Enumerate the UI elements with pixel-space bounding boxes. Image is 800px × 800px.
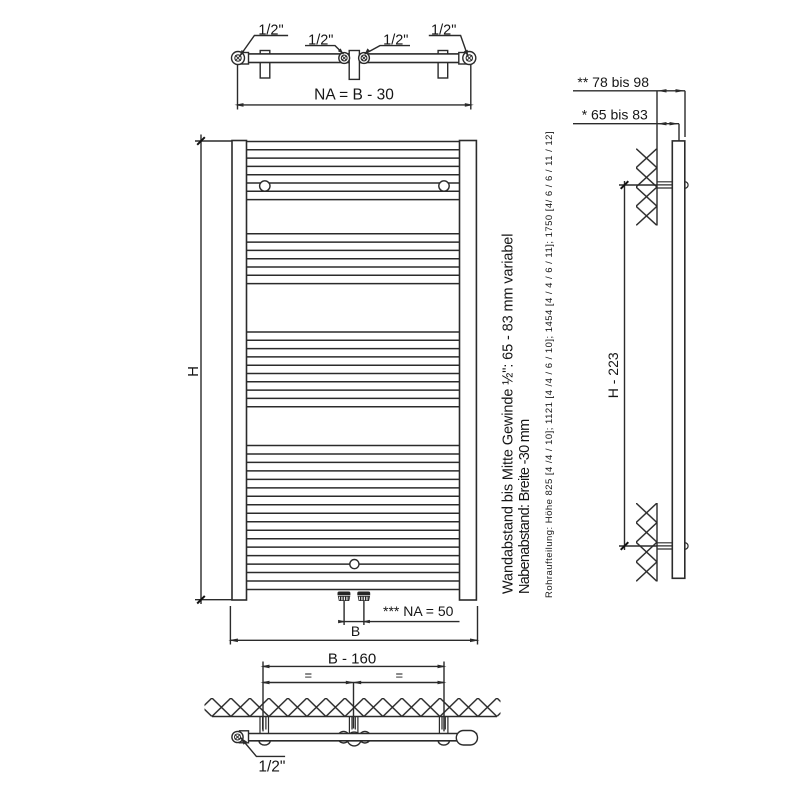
svg-text:=: = [396, 668, 404, 683]
svg-text:1/2": 1/2" [258, 22, 283, 38]
svg-text:NA = B - 30: NA = B - 30 [314, 87, 394, 104]
svg-text:B: B [351, 623, 360, 639]
svg-text:* 65 bis 83: * 65 bis 83 [582, 107, 648, 123]
svg-text:Nabenabstand: Breite -30 mm: Nabenabstand: Breite -30 mm [517, 419, 533, 594]
svg-text:*** NA = 50: *** NA = 50 [383, 603, 454, 619]
svg-text:1/2": 1/2" [383, 32, 408, 48]
svg-text:H: H [185, 366, 202, 377]
svg-text:1/2": 1/2" [431, 22, 456, 38]
svg-text:Rohraufteilung: Höhe 825 [4 /4: Rohraufteilung: Höhe 825 [4 /4 / 10]; 11… [544, 131, 555, 598]
svg-text:B - 160: B - 160 [328, 651, 376, 668]
svg-text:Wandabstand bis Mitte Gewinde: Wandabstand bis Mitte Gewinde ½": 65 - 8… [501, 234, 517, 594]
svg-text:1/2": 1/2" [258, 759, 285, 776]
svg-text:=: = [305, 668, 313, 683]
svg-text:** 78 bis 98: ** 78 bis 98 [577, 74, 649, 90]
svg-text:H - 223: H - 223 [605, 352, 621, 398]
svg-text:1/2": 1/2" [308, 32, 333, 48]
